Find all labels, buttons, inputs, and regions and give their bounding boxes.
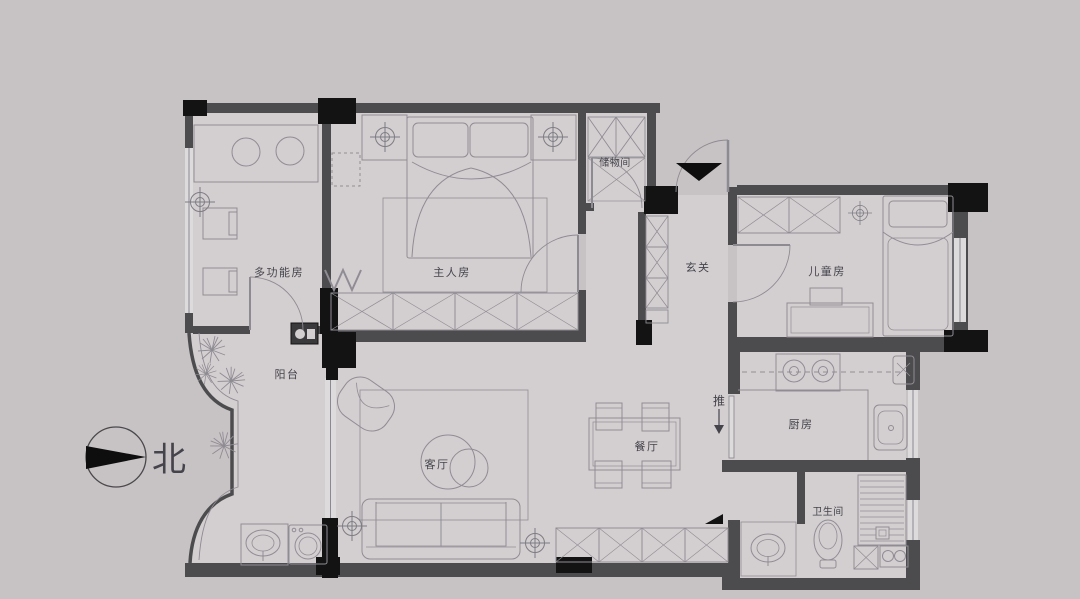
floor-plan: 推 多功能房 主人房 储物间 玄关 儿童房 阳台 客厅 餐厅 厨房 卫生间 北 [0,0,1080,599]
room-label-bathroom: 卫生间 [812,505,844,518]
room-label-foyer: 玄关 [686,260,711,274]
room-label-living-room: 客厅 [425,457,450,471]
window-multifunction-left [185,148,193,313]
room-label-balcony: 阳台 [275,367,300,381]
room-label-master-bedroom: 主人房 [433,266,471,279]
window-kitchen-right [908,390,918,458]
window-balcony-living-door [325,378,336,518]
push-door-label: 推 [713,394,725,408]
room-label-storage: 储物间 [599,156,631,169]
room-label-multifunction: 多功能房 [254,265,304,279]
north-label: 北 [152,440,186,480]
room-label-kitchen: 厨房 [789,418,814,431]
door-kitchen-sliding [729,396,734,458]
room-label-dining-room: 餐厅 [635,439,660,453]
room-label-kids-room: 儿童房 [808,264,846,278]
window-kids-right [954,238,966,322]
floor-plan-drawing: 推 多功能房 主人房 储物间 玄关 儿童房 阳台 客厅 餐厅 厨房 卫生间 北 [0,0,1080,599]
window-bathroom-right [908,500,918,540]
water-heater [291,323,318,344]
